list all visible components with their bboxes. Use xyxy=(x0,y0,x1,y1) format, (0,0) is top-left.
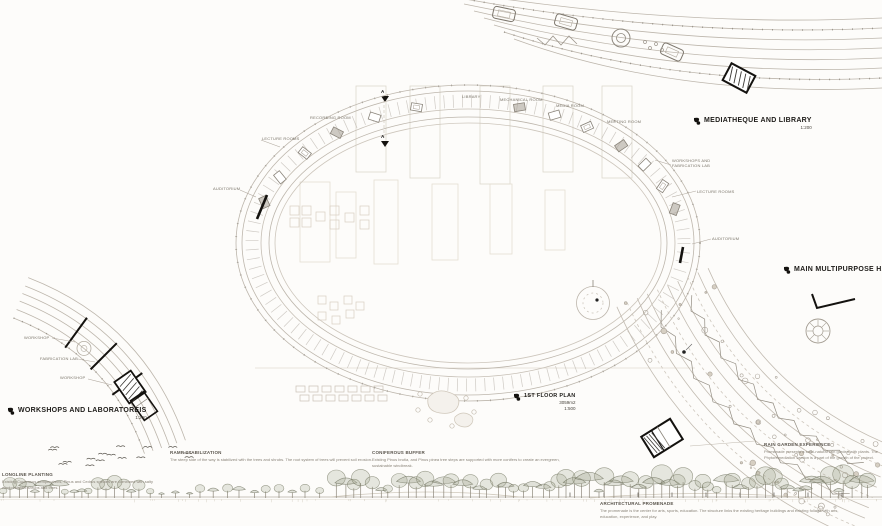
main-plan-title-block: 1ST FLOOR PLAN 3059m2 1:500 xyxy=(512,393,576,411)
room-label: AUDITORIUM xyxy=(213,186,240,191)
plan-title: MEDIATHEQUE AND LIBRARY xyxy=(704,117,812,124)
workshops-title-block: WORKSHOPS AND LABORATOREIS 1:200 xyxy=(6,407,147,420)
room-label: RECORDING ROOM xyxy=(310,115,351,120)
note-body: Promenade presents a semi-natural rain g… xyxy=(764,449,882,461)
note-longline-planting: LONGLINE PLANTING Existing Cupressus sem… xyxy=(2,472,154,491)
room-label: AUDITORIUM xyxy=(712,236,739,241)
drawing-canvas xyxy=(0,0,882,526)
room-label: WORKSHOP xyxy=(24,335,49,340)
mediatheque-detail-plan xyxy=(444,0,882,93)
plan-area: 3059m2 xyxy=(524,400,576,405)
note-title: LONGLINE PLANTING xyxy=(2,472,154,477)
plan-marker-icon xyxy=(6,407,15,415)
plan-title: MAIN MULTIPURPOSE HALL xyxy=(794,266,882,273)
plan-marker-icon xyxy=(512,393,521,401)
note-body: The steep side of the way is stabilized … xyxy=(170,457,380,463)
note-rain-garden: RAIN GARDEN EXPERIENCE Promenade present… xyxy=(764,442,882,461)
room-label: WORKSHOPS AND FABRICATION LAB xyxy=(672,158,714,168)
room-label: LECTURE ROOMS xyxy=(262,136,300,141)
note-body: The promenade is the center for arts, sp… xyxy=(600,508,840,520)
note-title: RAMP STABILIZATION xyxy=(170,450,380,455)
plan-marker-icon xyxy=(782,266,791,274)
note-ramp-stabilization: RAMP STABILIZATION The steep side of the… xyxy=(170,450,380,463)
note-architectural-promenade: ARCHITECTURAL PROMENADE The promenade is… xyxy=(600,501,840,520)
plan-marker-icon xyxy=(692,117,701,125)
workshops-detail-plan xyxy=(14,278,186,454)
room-label: LIBRARY xyxy=(462,94,480,99)
context-buildings xyxy=(255,86,695,401)
note-coniferous-buffer: CONIFEROUS BUFFER Existing Pinus brutia,… xyxy=(372,450,577,469)
presentation-board: LECTURE ROOMS RECORDING ROOM LIBRARY MEC… xyxy=(0,0,882,526)
note-title: CONIFEROUS BUFFER xyxy=(372,450,577,455)
note-body: Existing Cupressus sempervirens, Pinus a… xyxy=(2,479,154,491)
plan-title: WORKSHOPS AND LABORATOREIS xyxy=(18,407,147,414)
room-label: LECTURE ROOMS xyxy=(697,189,735,194)
note-title: RAIN GARDEN EXPERIENCE xyxy=(764,442,882,447)
multipurpose-title-block: MAIN MULTIPURPOSE HALL 1:200 xyxy=(782,266,882,279)
note-title: ARCHITECTURAL PROMENADE xyxy=(600,501,840,506)
mediatheque-title-block: MEDIATHEQUE AND LIBRARY 1:200 xyxy=(692,117,812,130)
room-label: MEETING ROOM xyxy=(607,119,641,124)
room-label: MECHANICAL ROOM xyxy=(500,97,543,102)
plan-scale: 1:500 xyxy=(524,406,576,411)
room-label: FABRICATION LAB xyxy=(40,356,78,361)
plan-title: 1ST FLOOR PLAN xyxy=(524,393,576,399)
plan-scale: 1:200 xyxy=(704,125,812,130)
plan-scale: 1:200 xyxy=(794,274,882,279)
room-label: WORKSHOP xyxy=(60,375,85,380)
note-body: Existing Pinus brutia, and Pinus pinea t… xyxy=(372,457,577,469)
section-marker-a: A xyxy=(381,89,384,94)
section-marker-a: A xyxy=(381,134,384,139)
main-ring-plan xyxy=(236,85,711,428)
room-label: MEDIA ROOM xyxy=(556,103,584,108)
plan-scale: 1:200 xyxy=(18,415,147,420)
